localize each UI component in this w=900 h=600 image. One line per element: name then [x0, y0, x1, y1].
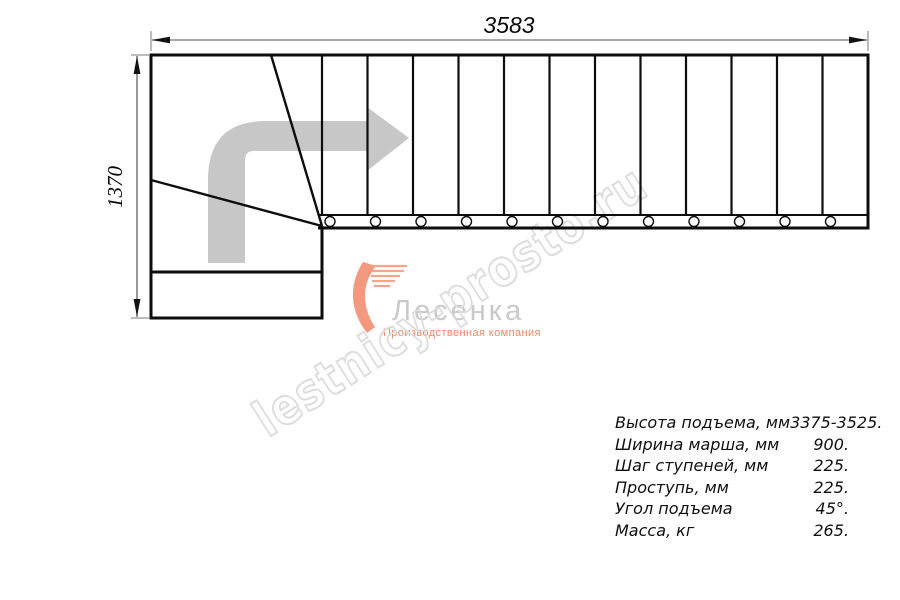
spec-row: Высота подъема, мм 3375-3525. [615, 412, 849, 434]
spec-row: Проступь, мм 225. [615, 477, 849, 499]
spec-value: 900. [813, 434, 849, 456]
travel-direction-arrow-icon [208, 107, 409, 263]
dimension-top: 3583 [151, 12, 868, 51]
dimension-width-value: 3583 [483, 12, 534, 38]
spec-value: 225. [813, 455, 849, 477]
stair-drawing-page: Лесенка Производственная компания lestni… [0, 0, 900, 600]
spec-row: Шаг ступеней, мм 225. [615, 455, 849, 477]
spec-table: Высота подъема, мм 3375-3525. Ширина мар… [615, 412, 849, 541]
dimension-height-value: 1370 [103, 166, 127, 209]
spec-label: Высота подъема, мм [615, 412, 790, 434]
spec-value: 225. [813, 477, 849, 499]
spec-row: Угол подъема 45°. [615, 498, 849, 520]
dim-arrow-down-icon [134, 299, 141, 317]
spec-label: Шаг ступеней, мм [615, 455, 768, 477]
spec-value: 3375-3525. [790, 412, 882, 434]
spec-value: 45°. [816, 498, 849, 520]
dim-arrow-left-icon [152, 37, 170, 44]
dim-arrow-right-icon [849, 37, 867, 44]
spec-value: 265. [813, 520, 849, 542]
spec-label: Масса, кг [615, 520, 694, 542]
spec-row: Ширина марша, мм 900. [615, 434, 849, 456]
dim-arrow-up-icon [134, 56, 141, 74]
spec-label: Угол подъема [615, 498, 733, 520]
spec-label: Ширина марша, мм [615, 434, 779, 456]
dimension-left: 1370 [103, 55, 149, 318]
spec-row: Масса, кг 265. [615, 520, 849, 542]
logo-speed-lines [371, 266, 407, 286]
spec-label: Проступь, мм [615, 477, 729, 499]
